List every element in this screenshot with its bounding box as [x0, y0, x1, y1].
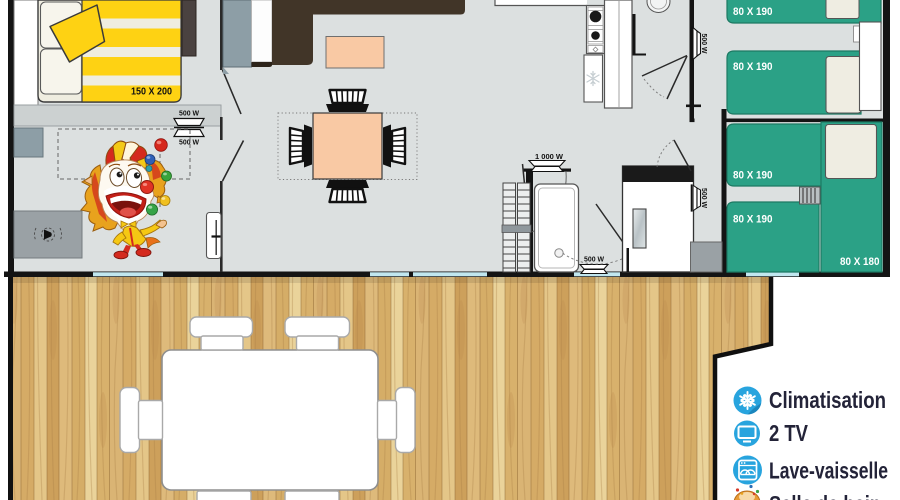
svg-text:1 000 W: 1 000 W	[535, 152, 564, 161]
svg-text:Climatisation: Climatisation	[769, 387, 886, 413]
svg-text:80 X 180: 80 X 180	[840, 256, 880, 268]
svg-text:500 W: 500 W	[179, 109, 200, 118]
svg-text:80 X 190: 80 X 190	[733, 6, 773, 18]
svg-text:500 W: 500 W	[700, 34, 707, 54]
svg-text:Salle de bain: Salle de bain	[769, 491, 881, 500]
svg-text:Lave-vaisselle: Lave-vaisselle	[769, 458, 888, 484]
svg-text:500 W: 500 W	[584, 255, 605, 264]
svg-text:150 X 200: 150 X 200	[131, 87, 172, 98]
svg-text:80 X 190: 80 X 190	[733, 214, 773, 226]
svg-text:500 W: 500 W	[179, 138, 200, 147]
svg-text:80 X 190: 80 X 190	[733, 61, 773, 73]
svg-text:80 X 190: 80 X 190	[733, 170, 773, 182]
svg-text:500 W: 500 W	[700, 188, 707, 208]
svg-text:2 TV: 2 TV	[769, 420, 809, 446]
